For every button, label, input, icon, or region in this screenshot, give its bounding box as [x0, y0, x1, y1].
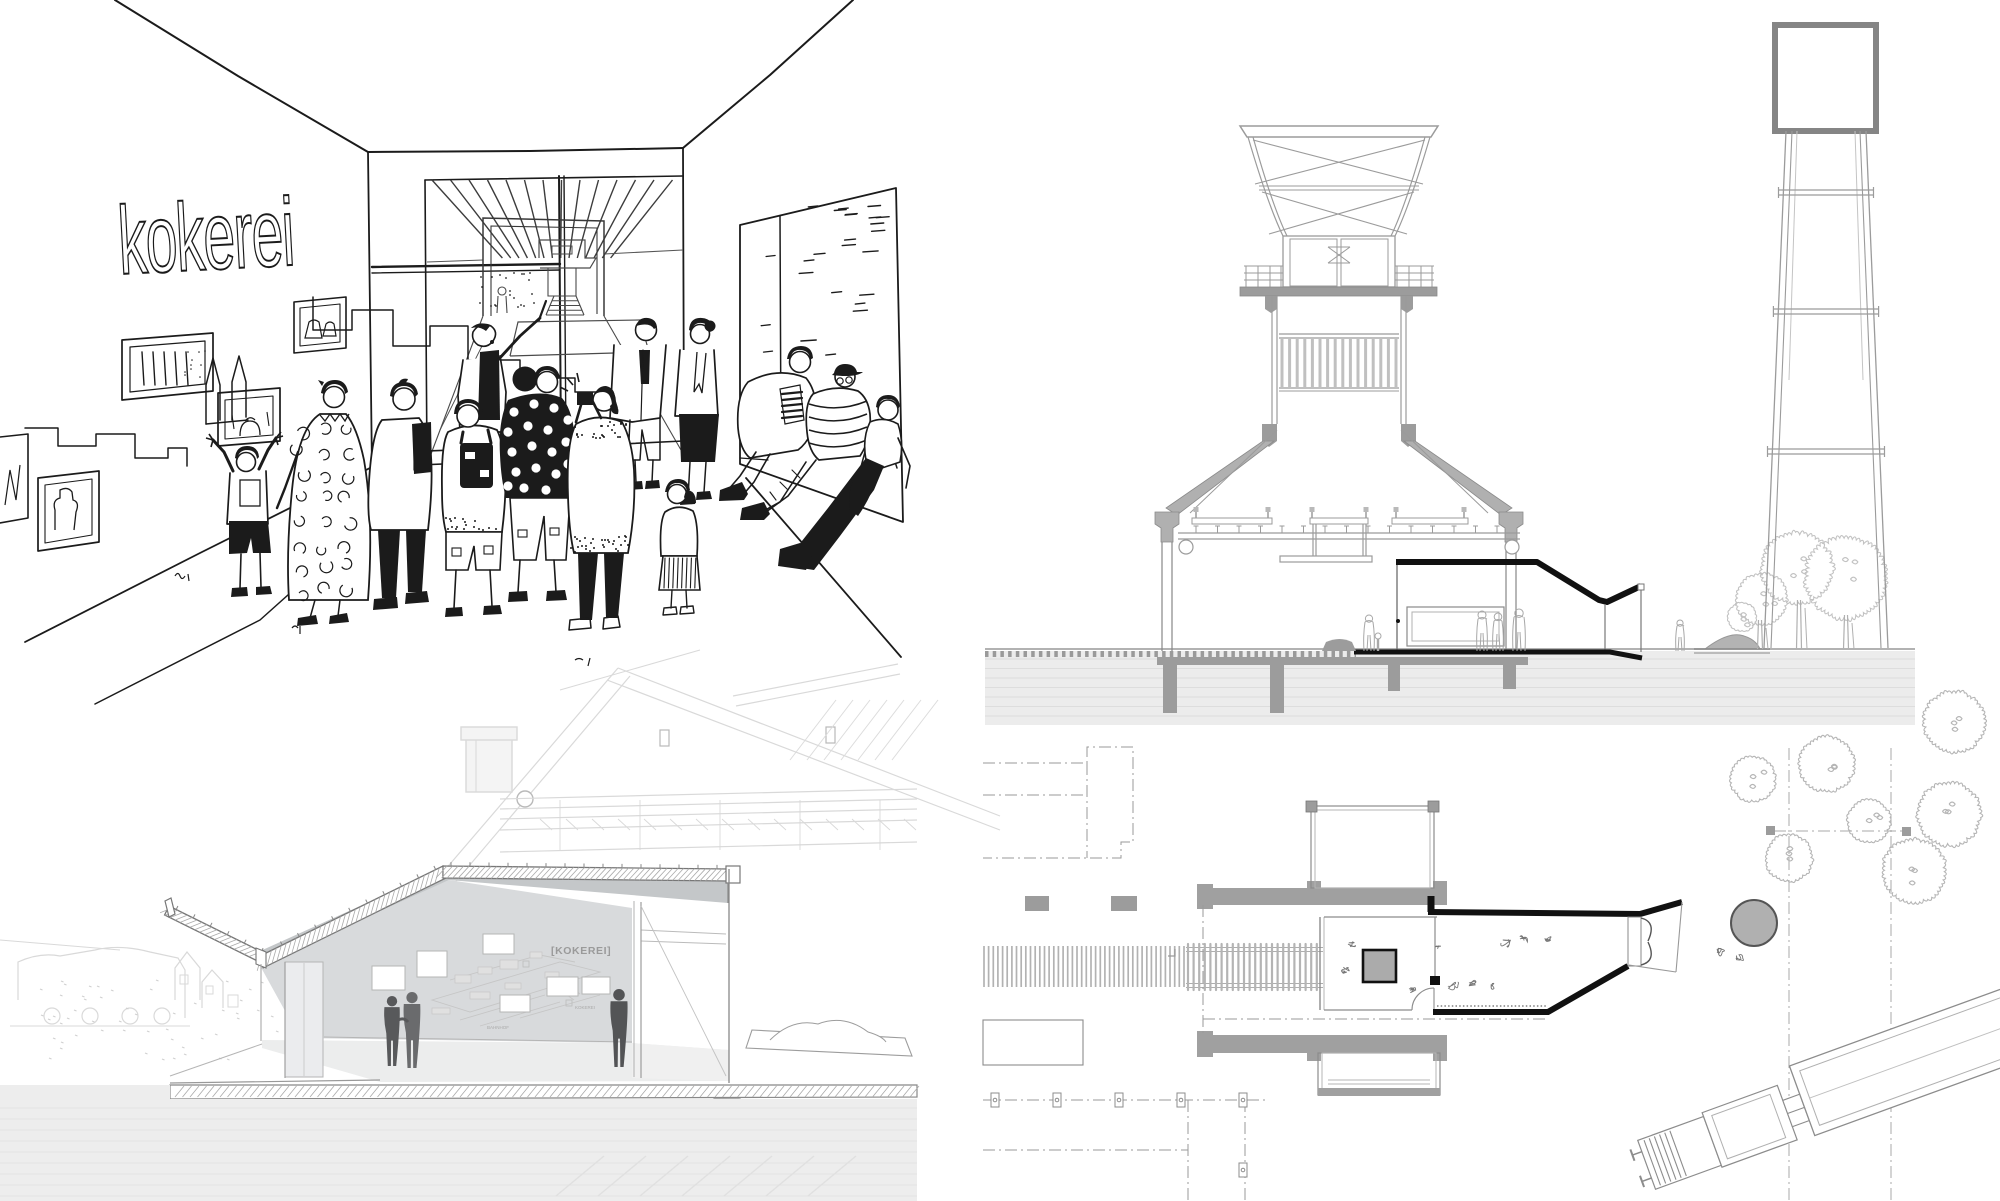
svg-text:KOKEREI: KOKEREI — [575, 1005, 595, 1010]
svg-text:[KOKEREI]: [KOKEREI] — [551, 945, 611, 957]
svg-text:BAHNHOF: BAHNHOF — [487, 1025, 509, 1030]
svg-text:kokerei: kokerei — [115, 177, 296, 294]
